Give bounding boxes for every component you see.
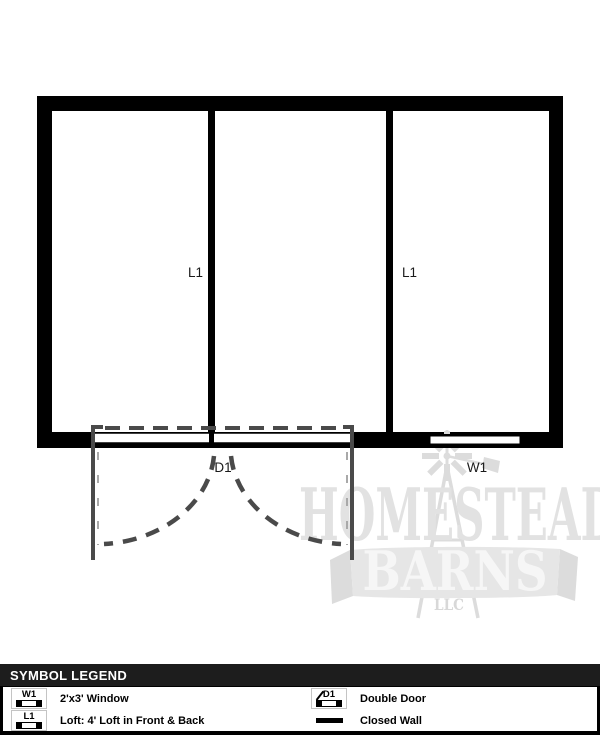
loft-symbol-label: L1: [23, 712, 34, 722]
closed-wall-icon: [316, 718, 343, 723]
legend-header: SYMBOL LEGEND: [0, 664, 600, 686]
legend-row-closed-wall: Closed Wall: [311, 710, 426, 731]
loft-symbol-icon: [16, 722, 42, 729]
floor-plan-drawing: HOMESTEAD BARNS LLC: [0, 0, 600, 664]
floor-plan-page: HOMESTEAD BARNS LLC: [0, 0, 600, 738]
window-symbol-label: W1: [22, 690, 36, 700]
window-entry-text: 2'x3' Window: [60, 693, 129, 705]
legend-title: SYMBOL LEGEND: [10, 668, 127, 683]
loft-symbol: L1: [11, 710, 47, 732]
loft-entry-text: Loft: 4' Loft in Front & Back: [60, 715, 204, 727]
window-symbol-icon: [16, 700, 42, 707]
legend-column-left: W1 2'x3' Window L1 Loft: 4' Loft in Fron…: [11, 687, 204, 731]
legend-column-right: D1 Double Door Closed Wall: [311, 687, 426, 731]
watermark-word2: BARNS: [363, 539, 548, 603]
symbol-legend: SYMBOL LEGEND W1 2'x3' Window L1 Loft: 4…: [0, 664, 600, 735]
legend-body: W1 2'x3' Window L1 Loft: 4' Loft in Fron…: [0, 686, 600, 735]
door-symbol-label: D1: [323, 690, 335, 700]
door-symbol-icon: [316, 700, 342, 707]
interior-wall-left: [209, 103, 214, 448]
wall-top: [37, 96, 563, 109]
loft-label-left: L1: [188, 265, 203, 280]
room-middle: [214, 110, 387, 433]
rooms: [51, 110, 550, 433]
closed-wall-symbol: [311, 716, 347, 725]
wall-left: [37, 96, 50, 448]
door-symbol: D1: [311, 688, 347, 710]
door-label: D1: [214, 460, 231, 475]
window-symbol: W1: [11, 688, 47, 710]
window-label: W1: [467, 460, 487, 475]
door-entry-text: Double Door: [360, 693, 426, 705]
interior-wall-right: [387, 103, 392, 434]
door-swing-arc-left: [104, 456, 214, 544]
legend-row-door: D1 Double Door: [311, 688, 426, 709]
door-opening: [92, 433, 353, 443]
closed-wall-entry-text: Closed Wall: [360, 715, 422, 727]
legend-row-loft: L1 Loft: 4' Loft in Front & Back: [11, 710, 204, 731]
window-opening: [430, 436, 520, 444]
legend-row-window: W1 2'x3' Window: [11, 688, 204, 709]
room-left: [51, 110, 209, 433]
watermark-word3: LLC: [434, 595, 464, 614]
wall-right: [550, 96, 563, 448]
loft-label-right: L1: [402, 265, 417, 280]
brand-watermark: HOMESTEAD BARNS LLC: [299, 430, 600, 618]
